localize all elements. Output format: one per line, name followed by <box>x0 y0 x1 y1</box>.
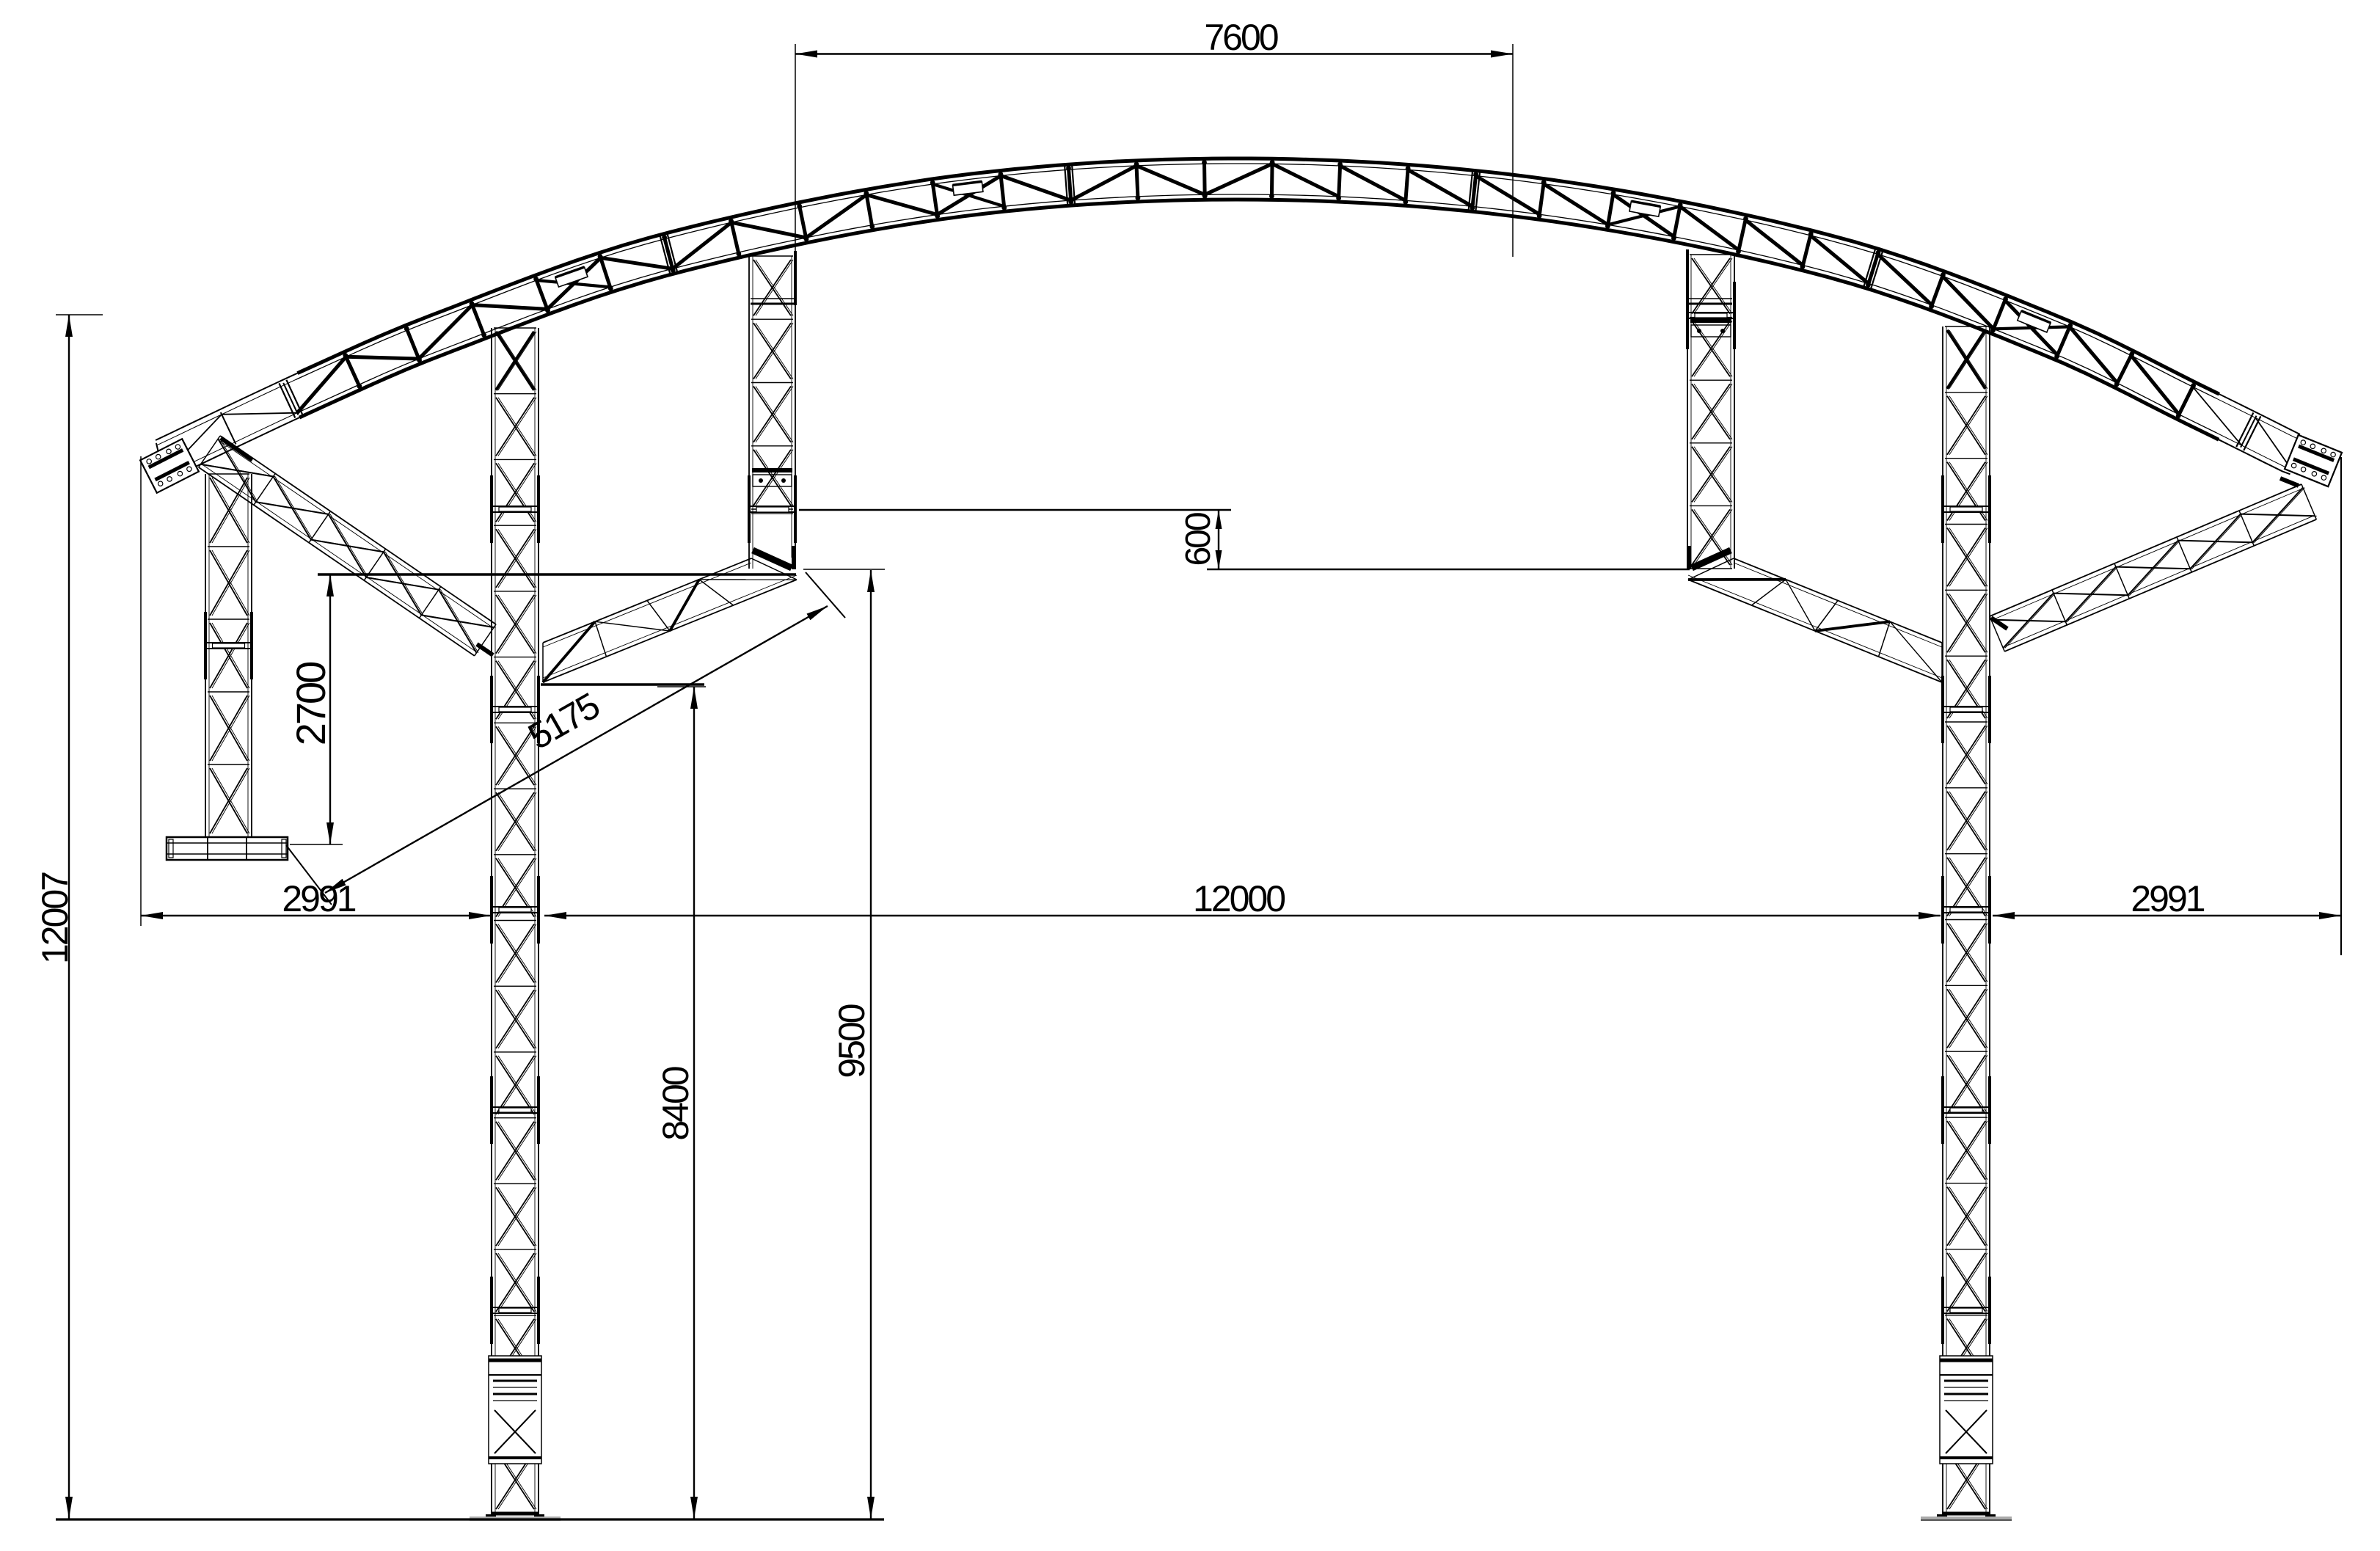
svg-text:2700: 2700 <box>288 663 334 745</box>
svg-text:9500: 9500 <box>831 1004 872 1078</box>
svg-text:2991: 2991 <box>2131 878 2204 919</box>
svg-text:12000: 12000 <box>1193 878 1285 919</box>
svg-text:8400: 8400 <box>655 1067 696 1140</box>
svg-text:600: 600 <box>1179 513 1218 566</box>
svg-text:12007: 12007 <box>34 872 76 964</box>
svg-text:7600: 7600 <box>1204 17 1277 58</box>
